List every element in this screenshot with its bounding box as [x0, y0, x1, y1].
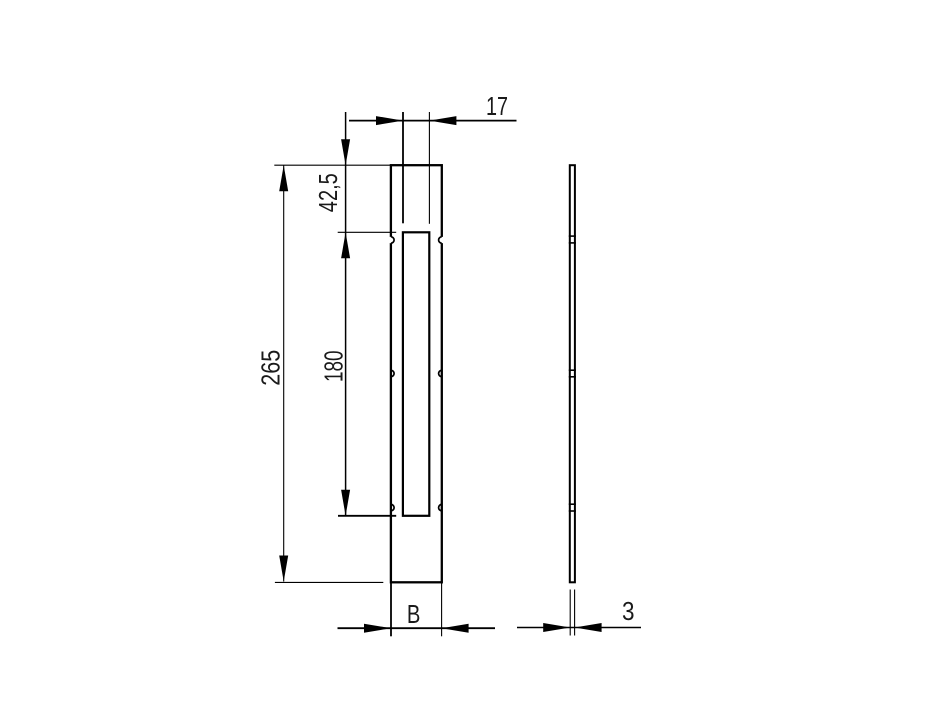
svg-text:265: 265 [256, 350, 286, 386]
svg-text:42,5: 42,5 [313, 173, 343, 212]
svg-text:180: 180 [319, 350, 349, 382]
svg-text:17: 17 [486, 91, 508, 121]
svg-text:B: B [407, 599, 421, 629]
svg-text:3: 3 [622, 596, 635, 626]
